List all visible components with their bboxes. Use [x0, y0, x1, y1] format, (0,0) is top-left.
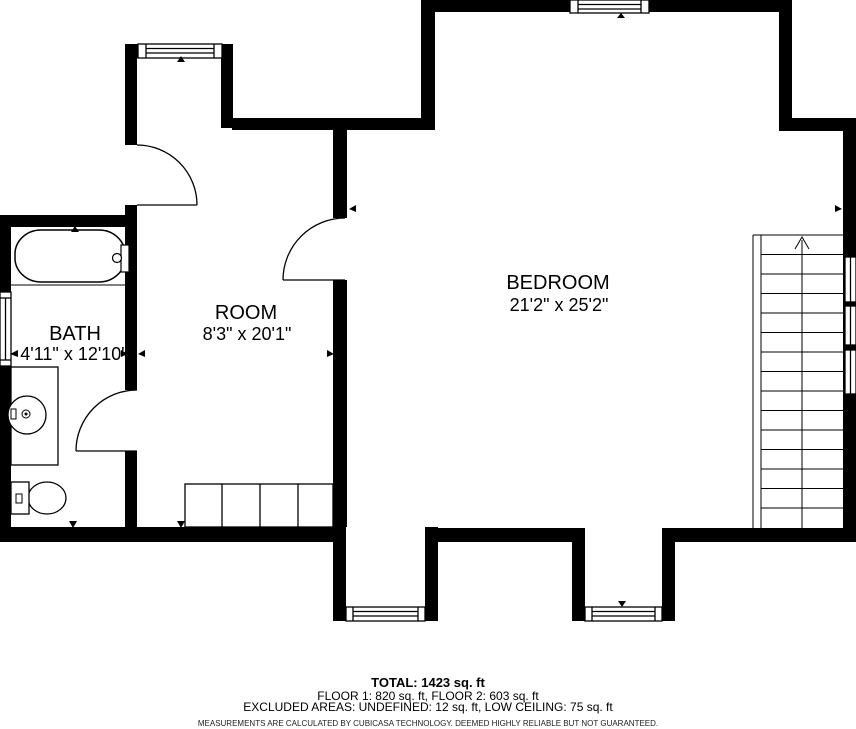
bath-fixtures: [8, 230, 129, 514]
door-bath: [76, 390, 137, 451]
measure-arrow-icon: [138, 350, 145, 357]
floor-plan-drawing: BATH 4'11" x 12'10" ROOM 8'3" x 20'1" BE…: [0, 0, 856, 660]
window-right-1: [845, 257, 856, 302]
walls: [0, 0, 856, 621]
room-labels: BATH 4'11" x 12'10" ROOM 8'3" x 20'1" BE…: [20, 272, 609, 364]
disclaimer-text: MEASUREMENTS ARE CALCULATED BY CUBICASA …: [0, 719, 856, 728]
measure-arrow-icon: [835, 205, 842, 212]
window-marker-icon: [69, 521, 77, 528]
window-marker-icon: [177, 521, 185, 528]
bedroom-dimensions: 21'2" x 25'2": [510, 295, 609, 315]
total-area-text: TOTAL: 1423 sq. ft: [0, 675, 856, 690]
door-room-bedroom: [283, 218, 345, 280]
room-dimensions: 8'3" x 20'1": [203, 324, 292, 344]
measure-arrow-icon: [327, 350, 334, 357]
doors: [76, 145, 345, 451]
window-marker-icon: [618, 601, 626, 607]
window-right-2: [845, 306, 856, 345]
window-right-3: [845, 350, 856, 394]
bath-dimensions: 4'11" x 12'10": [20, 344, 127, 364]
door-room-nook: [137, 145, 197, 205]
measure-arrow-icon: [349, 205, 356, 212]
bedroom-label: BEDROOM: [506, 272, 609, 294]
room-label: ROOM: [215, 302, 277, 324]
window-bay-right: [585, 607, 662, 621]
bath-label: BATH: [49, 323, 101, 345]
floor-plan-page: BATH 4'11" x 12'10" ROOM 8'3" x 20'1" BE…: [0, 0, 856, 729]
window-bath-left: [0, 292, 11, 366]
sink-vanity: [8, 367, 58, 465]
window-bay-left: [346, 607, 425, 621]
window-marker-icon: [617, 13, 625, 18]
closet: [185, 484, 333, 527]
toilet: [11, 482, 66, 514]
staircase: [753, 235, 843, 528]
bathtub: [11, 230, 129, 285]
window-bedroom-top: [570, 0, 649, 13]
excluded-areas-text: EXCLUDED AREAS: UNDEFINED: 12 sq. ft, LO…: [0, 700, 856, 714]
window-room-top: [138, 44, 222, 58]
